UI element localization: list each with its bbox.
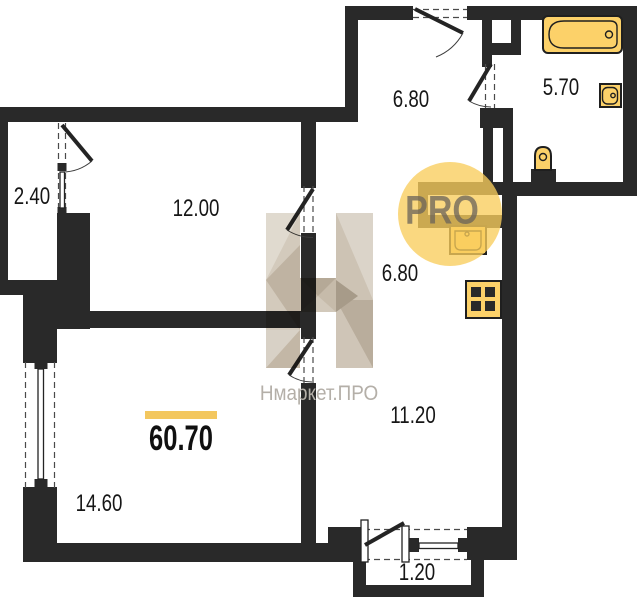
toilet-icon	[531, 147, 556, 183]
room-area-label-balcony-left: 2.40	[14, 183, 50, 211]
room-area-label-bathroom: 5.70	[543, 74, 579, 102]
watermark-badge-text: PRO	[405, 189, 479, 234]
room-area-label-corridor: 6.80	[382, 260, 418, 288]
balcony-window-bottom	[409, 538, 470, 552]
room-area-label-bedroom: 12.00	[173, 195, 220, 223]
bathtub-icon	[543, 16, 622, 53]
bathroom-sink-icon	[600, 84, 621, 107]
watermark-brand-text: Нмаркет.ПРО	[260, 382, 378, 406]
room-area-label-hallway: 6.80	[393, 86, 429, 114]
side-window	[26, 361, 55, 488]
room-area-label-balcony-bottom: 1.20	[399, 559, 435, 587]
watermark-h-logo	[266, 213, 373, 368]
room-area-label-kitchen-living: 11.20	[390, 402, 435, 430]
total-area-highlight	[145, 411, 217, 419]
floor-plan: 2.40 12.00 6.80 5.70 6.80 11.20 14.60 1.…	[0, 0, 639, 600]
room-area-label-living-room: 14.60	[76, 490, 123, 518]
total-area-label: 60.70	[149, 419, 213, 459]
bathroom-door	[469, 64, 495, 108]
entrance-door	[413, 9, 467, 57]
stove-icon	[466, 281, 501, 318]
